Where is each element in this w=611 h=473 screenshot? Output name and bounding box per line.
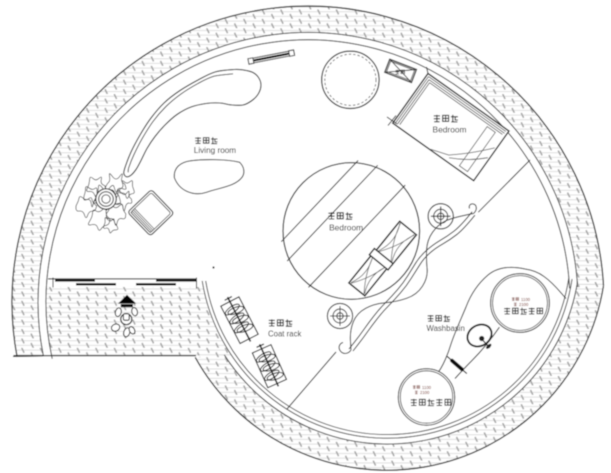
svg-text:1100: 1100 <box>422 385 432 390</box>
svg-text:Living room: Living room <box>194 146 237 155</box>
svg-text:Bedroom: Bedroom <box>433 124 467 134</box>
svg-text:Bedroom: Bedroom <box>329 222 363 232</box>
svg-text:Coat rack: Coat rack <box>268 329 301 338</box>
svg-text:2100: 2100 <box>420 390 430 395</box>
svg-text:2100: 2100 <box>519 302 529 307</box>
svg-text:1100: 1100 <box>521 297 531 302</box>
svg-text:Washbasin: Washbasin <box>427 324 465 333</box>
